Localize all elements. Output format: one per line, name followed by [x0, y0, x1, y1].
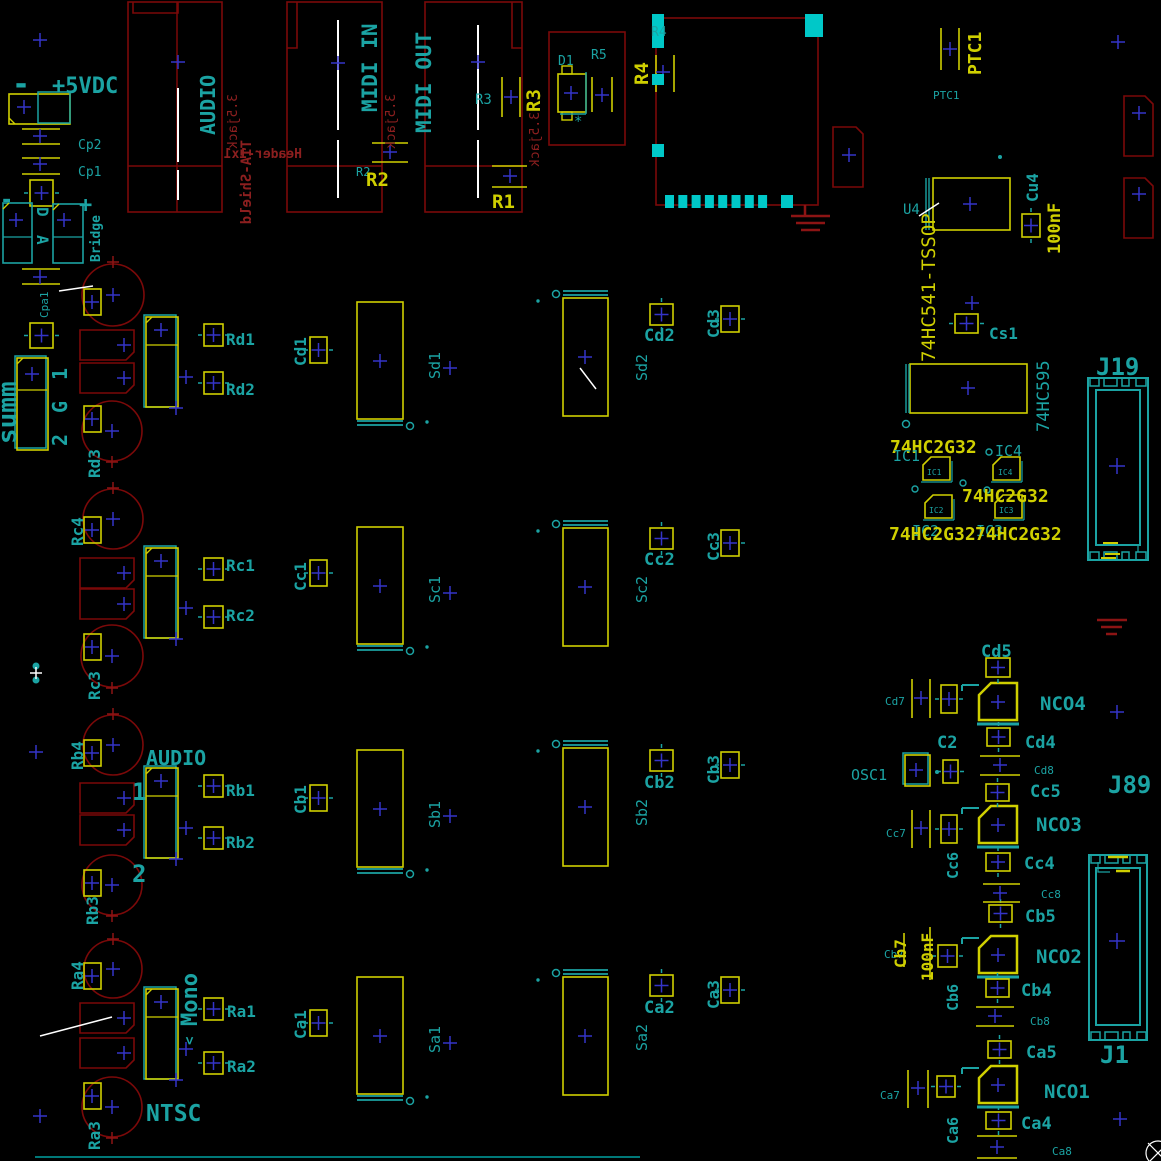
pin1-ring [407, 648, 414, 655]
tall-cap [146, 989, 152, 995]
label-ca6[interactable]: Ca6 [944, 1117, 962, 1144]
label-bridge-minus[interactable]: - [0, 188, 13, 213]
label-cc1[interactable]: Cc1 [291, 562, 310, 591]
label-cc7[interactable]: Cc7 [886, 827, 906, 840]
label-sd2[interactable]: Sd2 [633, 354, 651, 381]
j1-connector[interactable] [1089, 855, 1147, 1040]
label-hc2g32-4[interactable]: 74HC2G32 [975, 524, 1062, 545]
label-audio-jack-label[interactable]: AUDIO [196, 75, 220, 135]
label-r4[interactable]: R4 [631, 62, 653, 85]
summ-connector [17, 358, 23, 364]
midi-out-jack [512, 2, 522, 48]
label-mono-arrow[interactable]: < [182, 1037, 198, 1045]
sd-pad[interactable] [718, 195, 727, 208]
sd-card-connector[interactable] [656, 18, 818, 205]
label-cc5[interactable]: Cc5 [1030, 782, 1061, 802]
label-bridge-d[interactable]: D [33, 207, 52, 217]
sd-pad[interactable] [705, 195, 714, 208]
label-cb6[interactable]: Cb6 [944, 984, 962, 1011]
label-cb2[interactable]: Cb2 [644, 773, 675, 793]
label-cc4[interactable]: Cc4 [1024, 854, 1055, 874]
sd-pad[interactable] [665, 195, 674, 208]
dot [425, 420, 428, 423]
label-jack35-audio[interactable]: 3.5jack [226, 94, 241, 149]
label-header-1x1[interactable]: Header-1x1 [224, 147, 302, 162]
dot [935, 770, 939, 774]
label-rc1[interactable]: Rc1 [226, 556, 255, 575]
label-c2[interactable]: C2 [937, 733, 957, 753]
label-cd1[interactable]: Cd1 [291, 337, 310, 366]
label-summ-ping[interactable]: G [48, 401, 72, 413]
tall-cap [146, 317, 152, 323]
label-ic3-sm[interactable]: IC3 [999, 506, 1014, 515]
sd-pad[interactable] [652, 74, 664, 85]
label-nco2[interactable]: NCO2 [1036, 946, 1082, 968]
label-osc1[interactable]: OSC1 [851, 766, 887, 784]
dot [536, 749, 539, 752]
ratsnest [580, 368, 596, 389]
label-r1[interactable]: R1 [492, 191, 515, 213]
label-rb4[interactable]: Rb4 [68, 741, 87, 770]
label-hc2g32-2[interactable]: 74HC2G32 [962, 486, 1049, 507]
label-ptc1-ref[interactable]: PTC1 [933, 89, 960, 102]
label-rc3[interactable]: Rc3 [85, 671, 104, 700]
label-midi-in-label[interactable]: MIDI IN [358, 23, 382, 112]
label-nco1[interactable]: NCO1 [1044, 1081, 1090, 1103]
label-ca7[interactable]: Ca7 [880, 1089, 900, 1102]
label-nco4[interactable]: NCO4 [1040, 693, 1086, 715]
label-sc2[interactable]: Sc2 [633, 576, 651, 603]
label-r3-ref[interactable]: R3 [475, 92, 492, 108]
dot [425, 1095, 428, 1098]
mount-pad[interactable] [1124, 96, 1153, 156]
label-ca1[interactable]: Ca1 [291, 1010, 310, 1039]
tall-cap [144, 987, 176, 1079]
label-rb3[interactable]: Rb3 [83, 896, 102, 925]
label-ra3[interactable]: Ra3 [85, 1121, 104, 1150]
sd-pad[interactable] [745, 195, 754, 208]
j1-pad[interactable] [1123, 1032, 1130, 1040]
sd-pad[interactable] [652, 144, 664, 157]
label-midi-out-label[interactable]: MIDI OUT [412, 32, 436, 133]
bridge-rectifier [53, 204, 59, 210]
pin1-ring [912, 486, 918, 492]
label-cd3[interactable]: Cd3 [704, 309, 723, 338]
sd-pad[interactable] [758, 195, 767, 208]
label-ntsc[interactable]: NTSC [146, 1101, 201, 1127]
label-ca8[interactable]: Ca8 [1052, 1145, 1072, 1158]
label-ca2[interactable]: Ca2 [644, 998, 675, 1018]
label-j89[interactable]: J89 [1108, 771, 1151, 799]
label-summ-pin2[interactable]: 2 [48, 434, 72, 446]
label-sa1[interactable]: Sa1 [426, 1026, 444, 1053]
j19-connector [1096, 390, 1140, 545]
label-cc8[interactable]: Cc8 [1041, 888, 1061, 901]
label-bridge[interactable]: Bridge [89, 215, 104, 262]
label-ic1-sm[interactable]: IC1 [927, 468, 942, 477]
pin1-ring [986, 449, 992, 455]
label-cb7-value[interactable]: 100nF [918, 933, 937, 981]
dot [536, 978, 539, 981]
label-ic4[interactable]: IC4 [995, 442, 1022, 460]
label-rb1[interactable]: Rb1 [226, 781, 255, 800]
label-sd1[interactable]: Sd1 [426, 352, 444, 379]
label-r2[interactable]: R2 [366, 169, 389, 191]
label-cb4[interactable]: Cb4 [1021, 981, 1052, 1001]
label-u4-value[interactable]: 74HC541-TSSOP [918, 213, 940, 362]
label-cd5[interactable]: Cd5 [981, 642, 1012, 662]
label-channel-2[interactable]: 2 [132, 860, 146, 888]
midi-out-jack[interactable] [425, 2, 522, 212]
j1-pad[interactable] [1137, 1032, 1146, 1040]
label-channel-1[interactable]: 1 [132, 778, 146, 806]
sd-pad[interactable] [805, 14, 823, 37]
pin1-ring [903, 421, 910, 428]
j1-pad[interactable] [1105, 1032, 1118, 1040]
label-minus-top[interactable]: - [12, 67, 30, 102]
j19-mark [1130, 545, 1138, 552]
label-jack35-midiin[interactable]: 3.5jack [384, 94, 399, 149]
label-r5[interactable]: R5 [591, 48, 607, 63]
j1-pad[interactable] [1091, 1032, 1100, 1040]
input-cap [9, 118, 15, 124]
label-r4-ref[interactable]: R4 [651, 25, 667, 40]
label-u595-value[interactable]: 74HC595 [1034, 360, 1054, 432]
label-hc2g32-3[interactable]: 74HC2G32 [889, 524, 976, 545]
pin1-ring [407, 423, 414, 430]
pin1-ring [553, 970, 560, 977]
label-ra2[interactable]: Ra2 [227, 1057, 256, 1076]
label-ic2-sm[interactable]: IC2 [929, 506, 944, 515]
label-cd4[interactable]: Cd4 [1025, 733, 1056, 753]
label-ic4-sm[interactable]: IC4 [998, 468, 1013, 477]
sd-pad[interactable] [732, 195, 741, 208]
dot [998, 155, 1002, 159]
label-d1[interactable]: D1 [558, 54, 574, 69]
label-j1[interactable]: J1 [1100, 1041, 1129, 1069]
label-audio-channel-label[interactable]: AUDIO [146, 746, 206, 770]
audio-jack [133, 2, 178, 13]
j1-connector [1096, 868, 1140, 1025]
label-ca3[interactable]: Ca3 [704, 980, 723, 1009]
midi-in-jack [287, 2, 297, 48]
pin1-ring [553, 291, 560, 298]
label-rc2[interactable]: Rc2 [226, 606, 255, 625]
d1-diode [562, 112, 572, 120]
label-cd8[interactable]: Cd8 [1034, 764, 1054, 777]
sd-pad[interactable] [692, 195, 701, 208]
label-bridge-plus[interactable]: + [79, 193, 92, 218]
label-cc2[interactable]: Cc2 [644, 550, 675, 570]
label-r3[interactable]: R3 [523, 89, 545, 112]
dot [536, 529, 539, 532]
tall-cap [144, 546, 176, 638]
label-cb5[interactable]: Cb5 [1025, 907, 1056, 927]
dot [425, 645, 428, 648]
label-cc3[interactable]: Cc3 [704, 532, 723, 561]
label-d1-star[interactable]: * [574, 114, 582, 130]
label-rb2[interactable]: Rb2 [226, 833, 255, 852]
label-cd7[interactable]: Cd7 [885, 695, 905, 708]
label-cp2[interactable]: Cp2 [78, 138, 101, 153]
tall-cap [144, 766, 176, 858]
label-rc4[interactable]: Rc4 [68, 517, 87, 546]
label-cc6[interactable]: Cc6 [944, 852, 962, 879]
label-cb8[interactable]: Cb8 [1030, 1015, 1050, 1028]
dot [425, 868, 428, 871]
sd-pad[interactable] [781, 195, 793, 208]
pin1-ring [407, 871, 414, 878]
label-ca5[interactable]: Ca5 [1026, 1043, 1057, 1063]
label-cpa1[interactable]: Cpa1 [38, 292, 51, 319]
j19-pad[interactable] [1090, 552, 1099, 560]
label-sc1[interactable]: Sc1 [426, 576, 444, 603]
d1-r5-courtyard [549, 32, 625, 145]
label-cu4[interactable]: Cu4 [1023, 173, 1042, 202]
label-rd2[interactable]: Rd2 [226, 380, 255, 399]
label-sb2[interactable]: Sb2 [633, 799, 651, 826]
label-mono[interactable]: Mono [178, 973, 203, 1026]
label-cb7[interactable]: Cb7 [891, 939, 910, 968]
j19-pad[interactable] [1136, 552, 1146, 560]
tall-cap [144, 315, 176, 407]
sd-card-outline [833, 127, 863, 187]
pin1-ring [553, 741, 560, 748]
pin1-ring [553, 521, 560, 528]
label-rd1[interactable]: Rd1 [226, 330, 255, 349]
label-plus-5vdc[interactable]: +5VDC [52, 74, 118, 99]
pin1-ring [407, 1098, 414, 1105]
j1-pad[interactable] [1091, 855, 1100, 863]
label-cu4-value[interactable]: 100nF [1045, 203, 1065, 254]
label-cb1[interactable]: Cb1 [291, 785, 310, 814]
label-summ[interactable]: summ [0, 381, 23, 444]
j1-pad[interactable] [1137, 855, 1146, 863]
label-bridge-a[interactable]: A [33, 235, 52, 245]
label-summ-pin1[interactable]: 1 [48, 368, 72, 380]
label-tia-shield[interactable]: TIA-Shield [239, 140, 255, 224]
label-nco3[interactable]: NCO3 [1036, 814, 1082, 836]
dot [536, 299, 539, 302]
label-sb1[interactable]: Sb1 [426, 801, 444, 828]
label-rd3[interactable]: Rd3 [85, 449, 104, 478]
label-cs1[interactable]: Cs1 [989, 324, 1018, 343]
sd-pad[interactable] [678, 195, 687, 208]
label-j19[interactable]: J19 [1096, 353, 1139, 381]
j19-pad[interactable] [1122, 552, 1129, 560]
label-ra4[interactable]: Ra4 [68, 961, 87, 990]
label-sa2[interactable]: Sa2 [633, 1024, 651, 1051]
tall-cap [146, 548, 152, 554]
label-jack35-midiout[interactable]: 3.5jack [528, 112, 543, 167]
label-ptc1[interactable]: PTC1 [965, 32, 986, 75]
label-ra1[interactable]: Ra1 [227, 1002, 256, 1021]
label-ic1[interactable]: IC1 [893, 447, 920, 465]
label-cb3[interactable]: Cb3 [704, 755, 723, 784]
label-cd2[interactable]: Cd2 [644, 326, 675, 346]
label-ca4[interactable]: Ca4 [1021, 1114, 1052, 1134]
label-cp1[interactable]: Cp1 [78, 165, 101, 180]
pcb-canvas[interactable]: -+5VDCCp2Cp1-+DABridgeCpa1summ1G2AUDIOHe… [0, 0, 1161, 1161]
